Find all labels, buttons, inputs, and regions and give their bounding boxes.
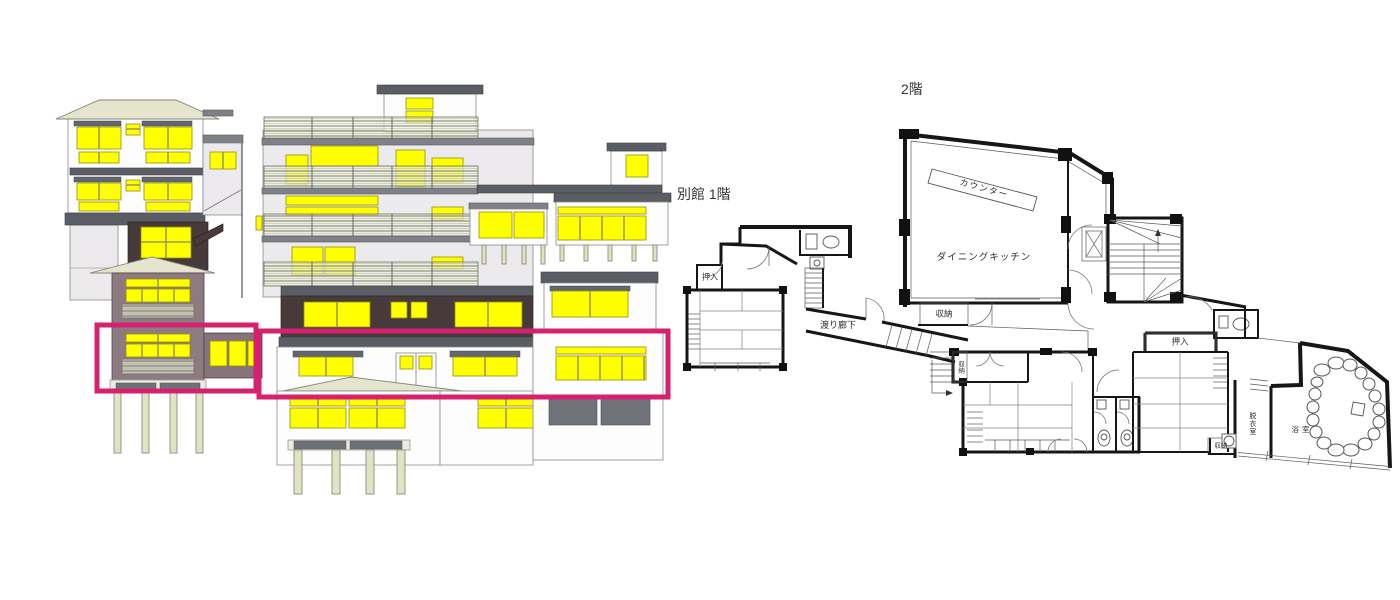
annex-plan <box>683 227 850 371</box>
storage-mid-label: 収納 <box>956 361 963 374</box>
balcony-railing <box>122 304 194 318</box>
elevator <box>1082 227 1106 261</box>
dressing-room-label: 脱衣室 <box>1248 412 1256 436</box>
architecture-drawing <box>0 0 1400 600</box>
roof-deck-railing <box>264 117 478 139</box>
gray-window <box>601 397 650 425</box>
middle-room-block <box>949 348 1140 456</box>
crossing-corridor-label: 渡り廊下 <box>820 321 856 331</box>
screenshot-canvas: 2階 別館 1階 カウンター ダイニングキッチン 収納 渡り廊下 押入 押入 収… <box>0 0 1400 600</box>
storage-dining-label: 収納 <box>935 309 952 318</box>
square-rock <box>1351 402 1365 416</box>
bridge-corridor <box>204 333 262 378</box>
bathroom-label: 浴室 <box>1292 426 1313 434</box>
main-building <box>256 85 547 494</box>
floor-plan <box>683 129 1390 470</box>
building-elevation <box>56 85 671 494</box>
east-room-block <box>1133 307 1300 454</box>
annex-title: 別館 1階 <box>677 187 731 202</box>
storage-east-label: 収納 <box>1215 442 1228 449</box>
closet-east-label: 押入 <box>1171 337 1188 346</box>
tatami-grid <box>700 290 783 367</box>
tatami-grid <box>963 382 1072 452</box>
dining-kitchen-label: ダイニングキッチン <box>937 253 1032 263</box>
bath-block <box>1222 343 1390 470</box>
floor2-title: 2階 <box>901 82 923 97</box>
balcony-railing <box>264 262 478 286</box>
closet-annex-label: 押入 <box>702 274 718 283</box>
balcony-railing <box>264 166 478 189</box>
engawa-hatch <box>688 314 700 349</box>
balcony-railing <box>122 359 194 374</box>
tower-lower-wall <box>70 225 118 300</box>
stilts <box>114 393 203 453</box>
staircase <box>1068 214 1258 338</box>
toilet <box>1214 310 1258 338</box>
annex-stairs <box>805 268 823 308</box>
tatami-grid <box>1133 352 1228 452</box>
dining-kitchen-room <box>899 129 1113 352</box>
tower-hip-roof <box>56 100 219 119</box>
balcony-railing <box>264 214 478 237</box>
engawa-hatch <box>967 412 1070 452</box>
gray-window <box>549 397 597 425</box>
engawa-hatch <box>1213 358 1227 388</box>
toilet <box>800 230 848 269</box>
